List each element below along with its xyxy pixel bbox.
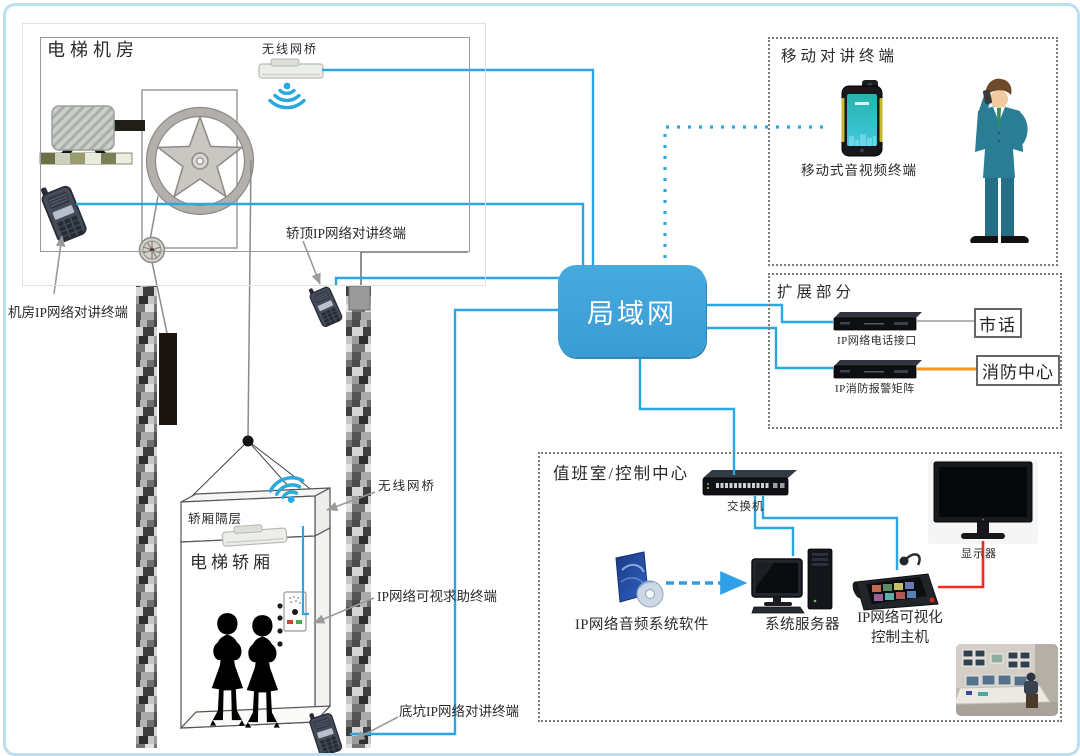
fire-center-label: 消防中心 <box>982 358 1054 383</box>
lan-node: 局域网 <box>558 265 706 357</box>
car-label: 电梯轿厢 <box>190 548 274 573</box>
machine-room-box <box>40 37 470 252</box>
lan-label: 局域网 <box>587 292 677 331</box>
mobile-section-title: 移动对讲终端 <box>781 44 898 66</box>
expansion-title: 扩展部分 <box>777 280 855 302</box>
host-label-line1: IP网络可视化 <box>841 609 959 629</box>
city-phone-label: 市话 <box>979 311 1017 336</box>
fire-matrix-label: IP消防报警矩阵 <box>835 380 915 396</box>
bridge-label-car: 无线网桥 <box>378 475 436 494</box>
mobile-device-label: 移动式音视频终端 <box>801 159 917 179</box>
switch-label: 交换机 <box>727 498 765 514</box>
mobile-terminal-section <box>768 37 1058 266</box>
cartop-terminal-label: 轿顶IP网络对讲终端 <box>286 222 406 242</box>
city-phone-box: 市话 <box>974 308 1022 338</box>
bridge-label-top: 无线网桥 <box>262 40 318 57</box>
tel-interface-label: IP网络电话接口 <box>837 332 917 348</box>
machineroom-handset-label: 机房IP网络对讲终端 <box>8 301 128 321</box>
host-label: IP网络可视化 控制主机 <box>841 609 959 648</box>
control-center-title: 值班室/控制中心 <box>553 460 689 484</box>
fire-center-box: 消防中心 <box>976 355 1060 386</box>
server-label: 系统服务器 <box>765 613 840 634</box>
machine-room-title: 电梯机房 <box>47 36 139 62</box>
host-label-line2: 控制主机 <box>841 629 959 649</box>
pit-terminal-label: 底坑IP网络对讲终端 <box>399 700 519 720</box>
interlayer-label: 轿厢隔层 <box>188 508 242 527</box>
software-label: IP网络音频系统软件 <box>575 613 709 634</box>
elevator-intercom-diagram: 局域网 市话 消防中心 电梯机房 无线网桥 机房IP网络对讲终端 轿顶IP网络对… <box>0 0 1080 756</box>
monitor-label: 显示器 <box>961 545 997 561</box>
control-center-section <box>538 452 1062 722</box>
help-terminal-label: IP网络可视求助终端 <box>377 585 497 605</box>
